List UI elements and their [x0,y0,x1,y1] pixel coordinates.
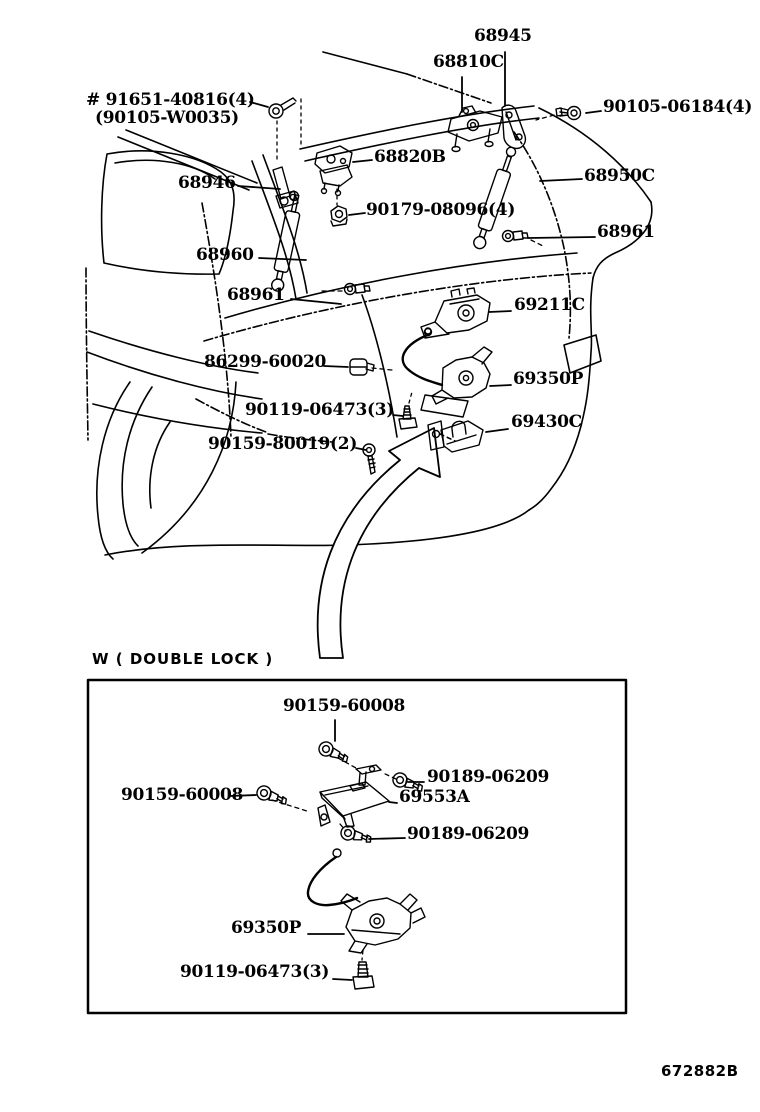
bolt-90119-inset-drawing [353,962,374,989]
part-label-68960: 68960 [196,247,254,265]
hinge-68810C-drawing [448,106,502,152]
grommet-86299-drawing [350,359,374,375]
part-label-68945: 68945 [474,28,532,46]
unit-69553A-drawing [318,765,389,827]
part-label-69553A: 69553A [399,789,470,807]
part-label-90105-06184: 90105-06184(4) [603,99,752,117]
lock-69350P-inset-drawing [341,894,425,953]
part-label-90105-W0035: (90105-W0035) [95,110,239,128]
tail-lamp-patch [564,335,601,373]
part-label-90119-06473-inset: 90119-06473(3) [180,964,329,982]
part-label-90159-60008-left: 90159-60008 [121,787,243,805]
lock-cable-main-drawing [403,329,442,386]
figure-code: 672882B [661,1062,739,1080]
part-label-90179-08096: 90179-08096(4) [366,202,515,220]
bolt-90105-drawing [556,107,581,120]
part-label-68950C: 68950C [584,168,655,186]
part-label-68961-left: 68961 [227,287,285,305]
screw-91651-drawing [269,98,296,118]
leader-lines-inset [230,720,424,980]
part-label-68820B: 68820B [374,149,446,167]
stay-68950C-drawing [471,145,519,250]
part-label-68810C: 68810C [433,54,504,72]
screw-90189-06209-lower-drawing [339,824,373,846]
bolt-68961-right-drawing [503,231,529,242]
bracket-68945-drawing [502,105,525,148]
bracket-68946-drawing [273,167,298,208]
hinge-68820B-drawing [315,146,352,196]
part-label-69350P-main: 69350P [513,371,583,389]
part-label-90189-06209-upper: 90189-06209 [427,769,549,787]
lock-cable-inset-drawing [308,849,357,905]
screw-90159-60008-top-drawing [317,740,351,766]
part-label-90119-06473-main: 90119-06473(3) [245,402,394,420]
part-label-86299-60020: 86299-60020 [204,354,326,372]
screw-90159-60008-left-drawing [255,784,289,808]
double-lock-inset-box [88,680,626,1013]
part-label-69211C: 69211C [514,297,585,315]
nut-90179-drawing [331,206,347,226]
parts-diagram-page: 68945 68810C # 91651-40816(4) (90105-W00… [0,0,760,1112]
part-label-68946: 68946 [178,175,236,193]
part-label-69350P-inset: 69350P [231,920,301,938]
screw-90159-80019-drawing [363,444,375,474]
bolt-90119-main-drawing [399,406,417,429]
part-label-90189-06209-lower: 90189-06209 [407,826,529,844]
part-label-69430C: 69430C [511,414,582,432]
part-label-90159-60008-top: 90159-60008 [283,698,405,716]
part-label-68961-right: 68961 [597,224,655,242]
bolt-68961-left-drawing [345,284,371,295]
inset-title-double-lock: W ( DOUBLE LOCK ) [92,650,273,668]
part-label-90159-80019: 90159-80019(2) [208,436,357,454]
